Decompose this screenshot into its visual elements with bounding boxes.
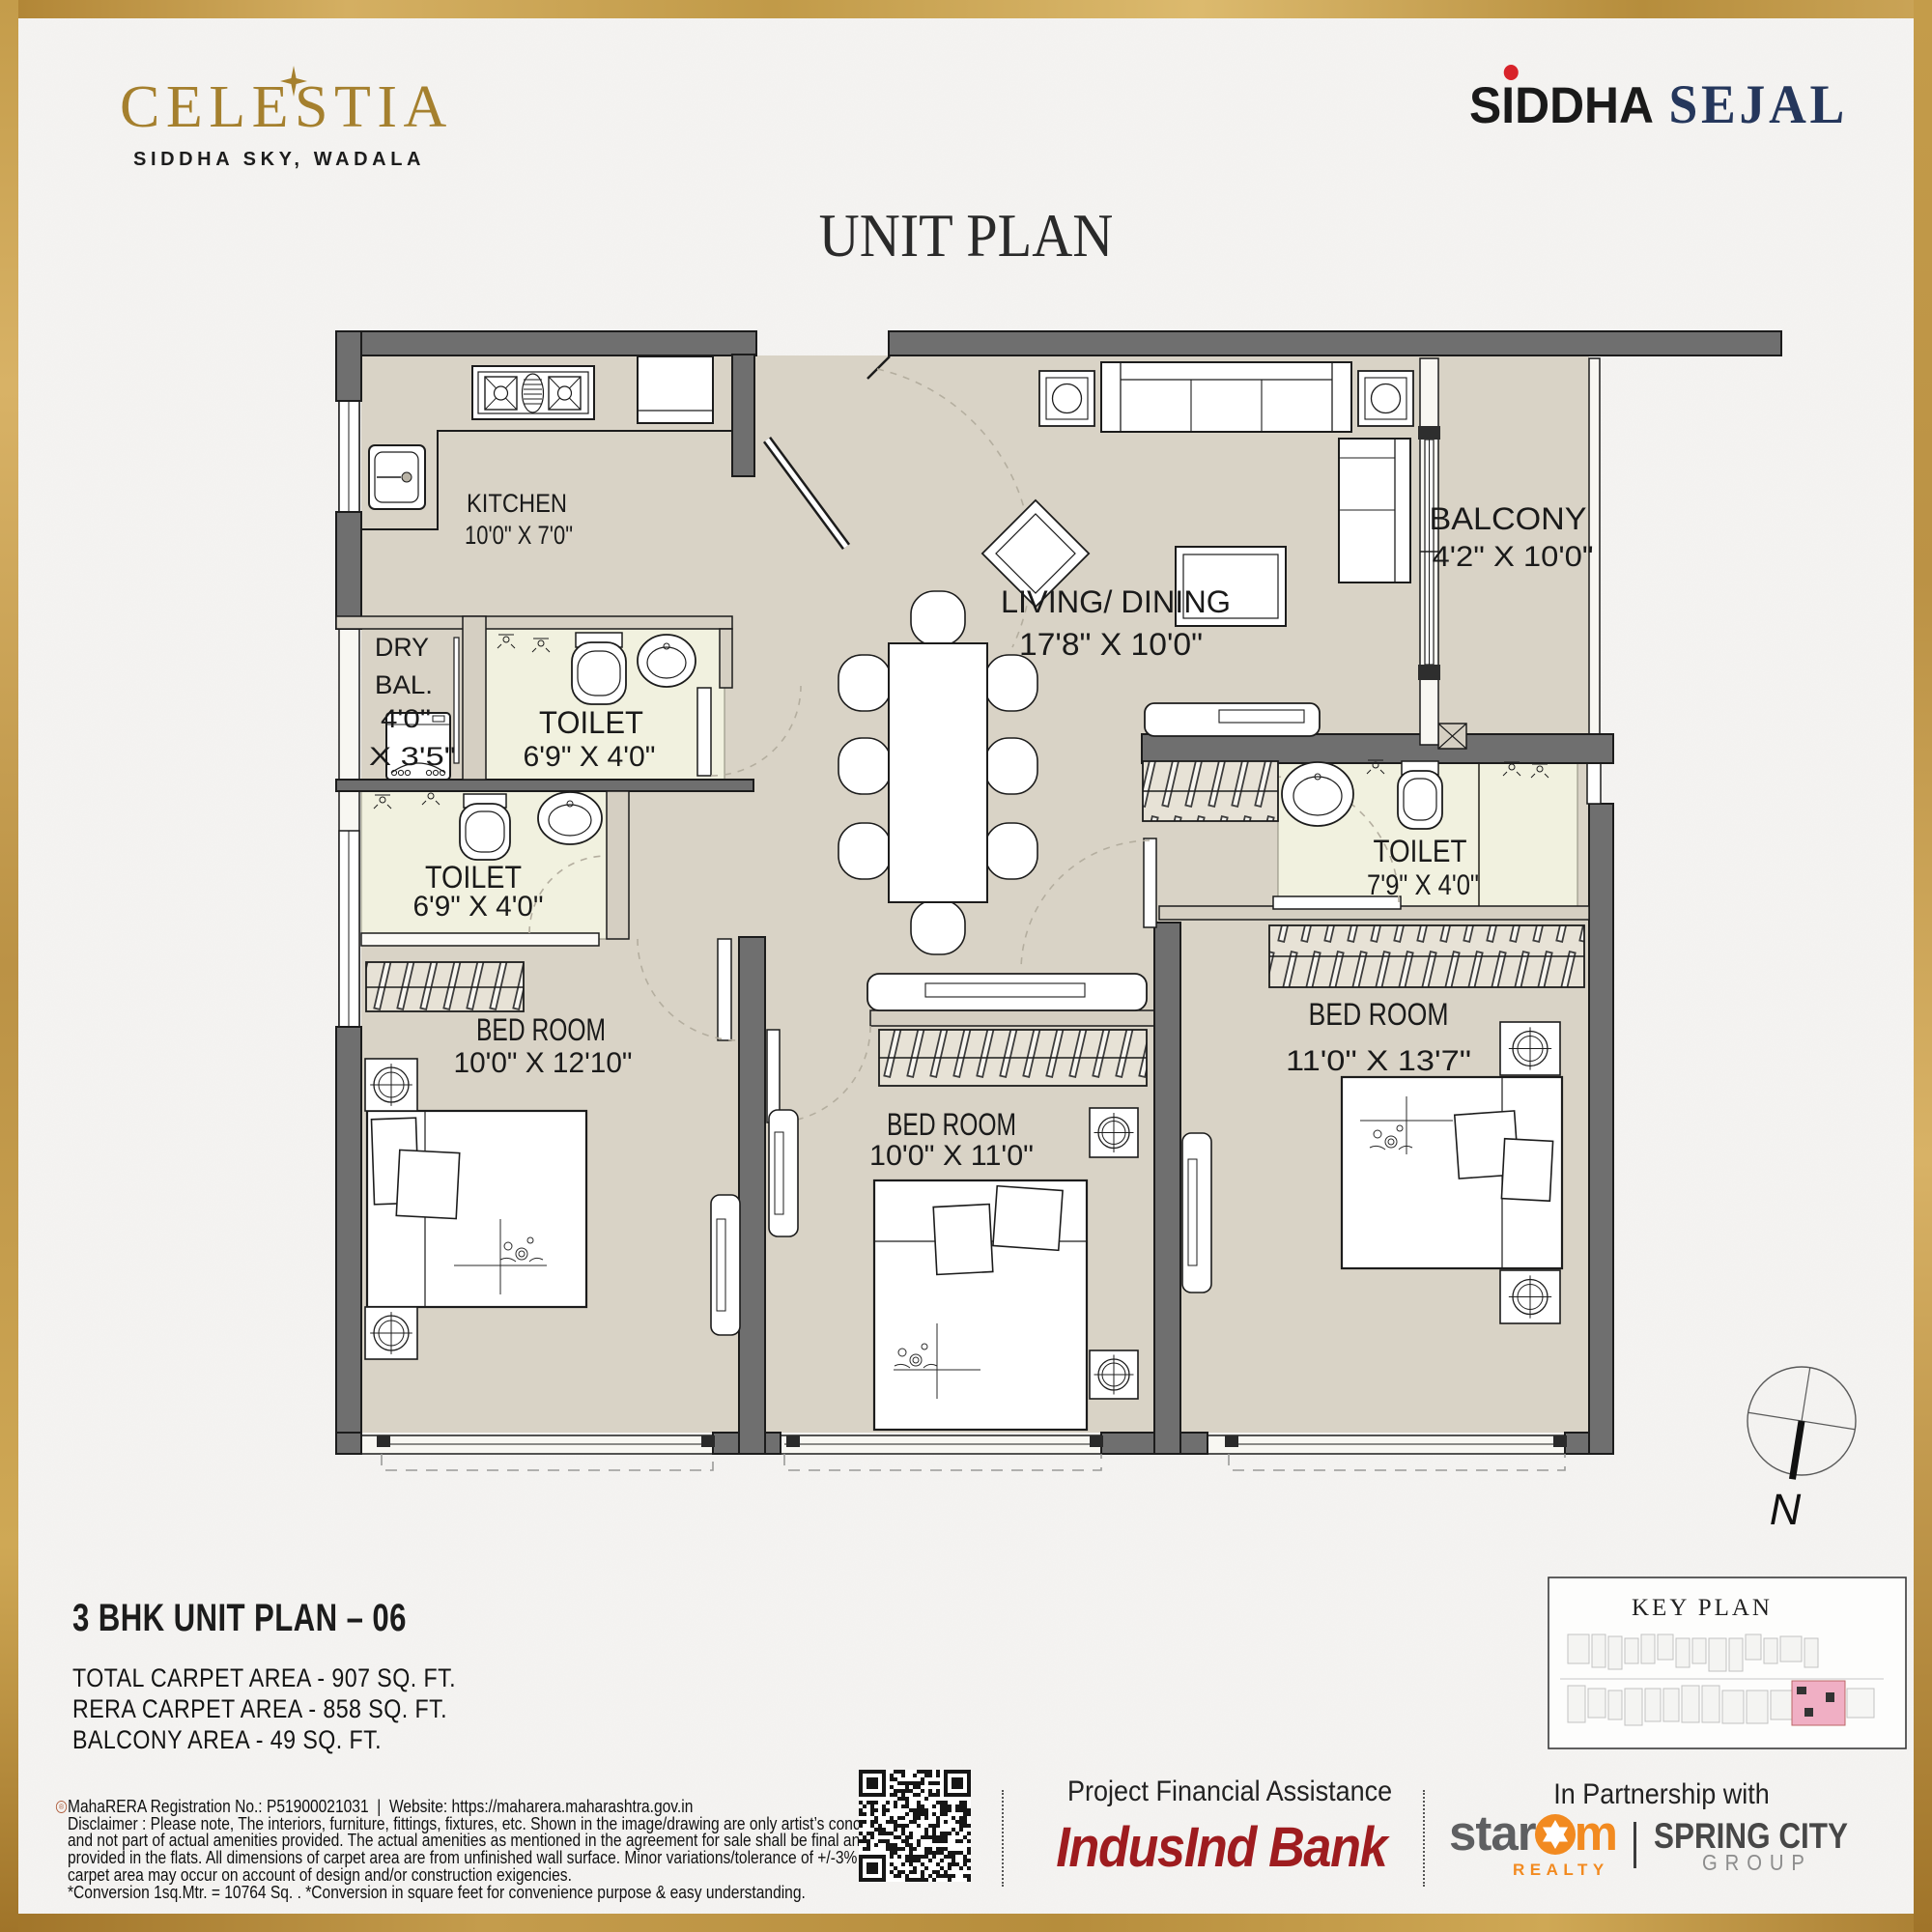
svg-text:10'0" X 12'10": 10'0" X 12'10" <box>454 1047 633 1079</box>
svg-text:6'9" X 4'0": 6'9" X 4'0" <box>524 741 656 773</box>
svg-text:KEY PLAN: KEY PLAN <box>1632 1595 1773 1621</box>
svg-text:BED ROOM: BED ROOM <box>887 1107 1016 1142</box>
svg-text:BED ROOM: BED ROOM <box>1309 997 1449 1032</box>
svg-text:10'0" X 7'0": 10'0" X 7'0" <box>465 521 573 550</box>
svg-text:LIVING/ DINING: LIVING/ DINING <box>1001 584 1231 619</box>
svg-text:4'0": 4'0" <box>381 704 431 733</box>
svg-text:BED ROOM: BED ROOM <box>476 1012 606 1047</box>
svg-text:6'9" X 4'0": 6'9" X 4'0" <box>413 891 544 923</box>
svg-text:7'9" X 4'0": 7'9" X 4'0" <box>1367 869 1479 901</box>
svg-text:TOILET: TOILET <box>425 860 522 895</box>
svg-text:TOILET: TOILET <box>539 705 643 740</box>
svg-text:BAL.: BAL. <box>375 670 433 699</box>
svg-text:TOILET: TOILET <box>1374 834 1467 868</box>
svg-text:11'0" X 13'7": 11'0" X 13'7" <box>1286 1045 1471 1077</box>
svg-text:BALCONY: BALCONY <box>1430 501 1587 536</box>
svg-text:N: N <box>1770 1485 1802 1534</box>
svg-text:X 3'5": X 3'5" <box>369 742 456 771</box>
svg-text:10'0" X 11'0": 10'0" X 11'0" <box>869 1140 1034 1172</box>
svg-text:KITCHEN: KITCHEN <box>467 489 567 518</box>
svg-text:DRY: DRY <box>375 633 429 662</box>
svg-text:17'8" X 10'0": 17'8" X 10'0" <box>1019 627 1203 662</box>
svg-text:4'2" X 10'0": 4'2" X 10'0" <box>1433 541 1594 573</box>
